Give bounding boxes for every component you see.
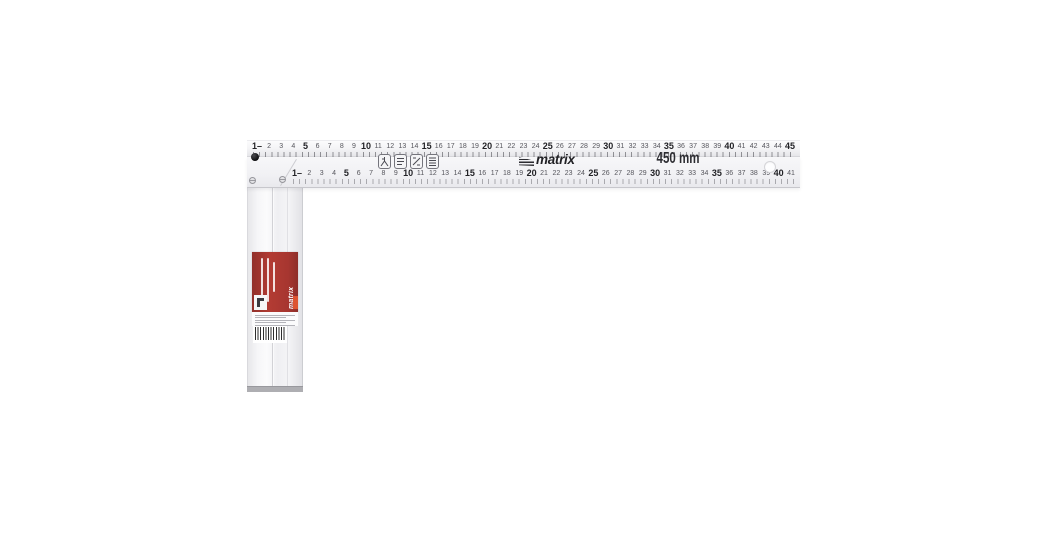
label-fineprint-line	[255, 320, 295, 321]
scale-number: 9	[394, 169, 398, 178]
scale-number: 40	[774, 169, 784, 178]
label-fineprint-line	[255, 317, 286, 318]
label-fineprint-line	[255, 322, 286, 323]
scale-number: 28	[627, 169, 635, 178]
marking-pictogram-icon	[410, 154, 423, 169]
label-product-thumbnail	[254, 295, 267, 310]
fastening-screw	[279, 176, 286, 183]
scale-number: 18	[503, 169, 511, 178]
scale-number: 2	[307, 169, 311, 178]
scale-number: 7	[369, 169, 373, 178]
scale-number: 3	[320, 169, 324, 178]
scale-number: 1–	[292, 169, 302, 178]
scale-number: 16	[478, 169, 486, 178]
scale-number: 13	[441, 169, 449, 178]
scale-number: 8	[381, 169, 385, 178]
length-label: 450 mm	[656, 150, 701, 168]
scale-number: 34	[701, 169, 709, 178]
scale-number: 23	[565, 169, 573, 178]
scale-number: 26	[602, 169, 610, 178]
label-accent-strip	[293, 296, 298, 309]
spec-lines-pictogram-icon	[394, 154, 407, 169]
scale-number: 31	[664, 169, 672, 178]
label-text-line	[273, 262, 275, 292]
stock-end-cap	[247, 386, 303, 392]
scale-number: 25	[588, 169, 598, 178]
scale-number: 24	[577, 169, 585, 178]
label-text-line	[267, 258, 269, 302]
angle-use-pictogram-icon	[378, 154, 391, 169]
scale-number: 5	[344, 169, 349, 178]
inner-scale-ticks	[293, 179, 795, 184]
scale-number: 20	[527, 169, 537, 178]
scale-number: 30	[650, 169, 660, 178]
table-lines-pictogram-icon	[426, 154, 439, 169]
scale-number: 14	[454, 169, 462, 178]
label-text-line	[261, 258, 263, 296]
label-info-panel	[252, 312, 298, 326]
brand-name: matrix	[536, 152, 575, 167]
matrix-wing-icon	[519, 156, 534, 166]
scale-number: 19	[515, 169, 523, 178]
scale-number: 10	[403, 169, 413, 178]
scale-number: 6	[357, 169, 361, 178]
product-label: matrix	[252, 252, 298, 343]
scale-number: 21	[540, 169, 548, 178]
scale-number: 36	[725, 169, 733, 178]
scale-number: 37	[738, 169, 746, 178]
barcode-bars	[255, 327, 285, 340]
label-red-panel: matrix	[252, 252, 298, 312]
scale-number: 29	[639, 169, 647, 178]
scale-number: 33	[688, 169, 696, 178]
label-fineprint-line	[255, 315, 295, 316]
hanging-hole	[764, 161, 776, 173]
scale-number: 35	[712, 169, 722, 178]
label-barcode	[253, 326, 287, 343]
certification-pictograms	[378, 154, 439, 169]
scale-number: 22	[552, 169, 560, 178]
scale-number: 27	[614, 169, 622, 178]
scale-number: 11	[417, 169, 424, 178]
scale-number: 38	[750, 169, 758, 178]
scale-number: 32	[676, 169, 684, 178]
scale-number: 4	[332, 169, 336, 178]
fastening-screw	[249, 177, 256, 184]
scale-number: 12	[429, 169, 437, 178]
corner-rivet	[251, 153, 259, 161]
square-blade-arm: 1–23456789101112131415161718192021222324…	[247, 140, 800, 188]
scale-number: 41	[787, 169, 795, 178]
product-photo: 1–23456789101112131415161718192021222324…	[0, 0, 1053, 549]
square-tool-glyph-icon	[257, 298, 264, 307]
scale-number: 15	[465, 169, 475, 178]
brand-logo: matrix	[519, 152, 575, 167]
scale-number: 17	[491, 169, 499, 178]
